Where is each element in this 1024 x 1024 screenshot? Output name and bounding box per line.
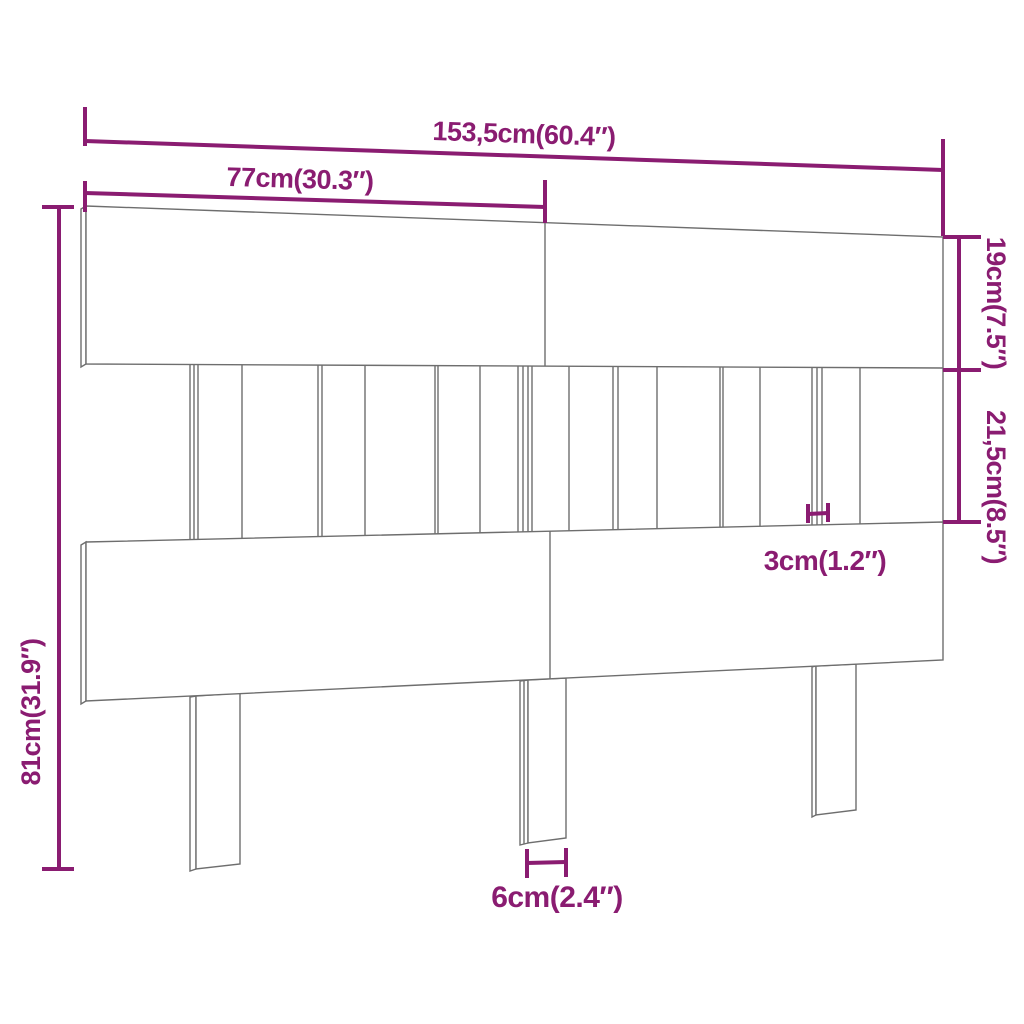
dim-leg-width-connector: [527, 862, 566, 863]
left-leg-front-face: [196, 693, 240, 869]
middle-leg-front-face: [528, 678, 566, 843]
dim-total-height: [42, 207, 74, 869]
right-leg-front-face: [816, 664, 856, 815]
dim-right-heights: [943, 237, 981, 522]
left-leg-side-face: [190, 696, 196, 871]
legs: [190, 664, 856, 871]
top-rail: [81, 206, 943, 368]
top-rail-height-label: 19cm(7.5″): [981, 237, 1011, 370]
leg-width-label: 6cm(2.4″): [491, 881, 623, 914]
bottom-rail-side-face: [81, 542, 86, 704]
headboard-dimension-diagram: 153,5cm(60.4″) 77cm(30.3″) 19cm(7.5″) 21…: [0, 0, 1024, 1024]
dim-slat-width: [808, 503, 828, 523]
slat-section-height-label: 21,5cm(8.5″): [981, 410, 1011, 564]
slat-width-label: 3cm(1.2″): [764, 545, 887, 576]
dim-leg-width: [527, 848, 566, 878]
headboard-drawing: [81, 206, 943, 871]
dim-slat-width-connector: [808, 513, 828, 514]
top-rail-front-face: [86, 206, 943, 368]
total-width-label: 153,5cm(60.4″): [432, 116, 616, 152]
top-rail-side-face: [81, 206, 86, 367]
slat-section: [190, 364, 943, 540]
dim-half-width-line: [85, 193, 545, 207]
diagram-svg: 153,5cm(60.4″) 77cm(30.3″) 19cm(7.5″) 21…: [0, 0, 1024, 1024]
half-width-label: 77cm(30.3″): [226, 162, 374, 196]
total-height-label: 81cm(31.9″): [16, 638, 46, 785]
